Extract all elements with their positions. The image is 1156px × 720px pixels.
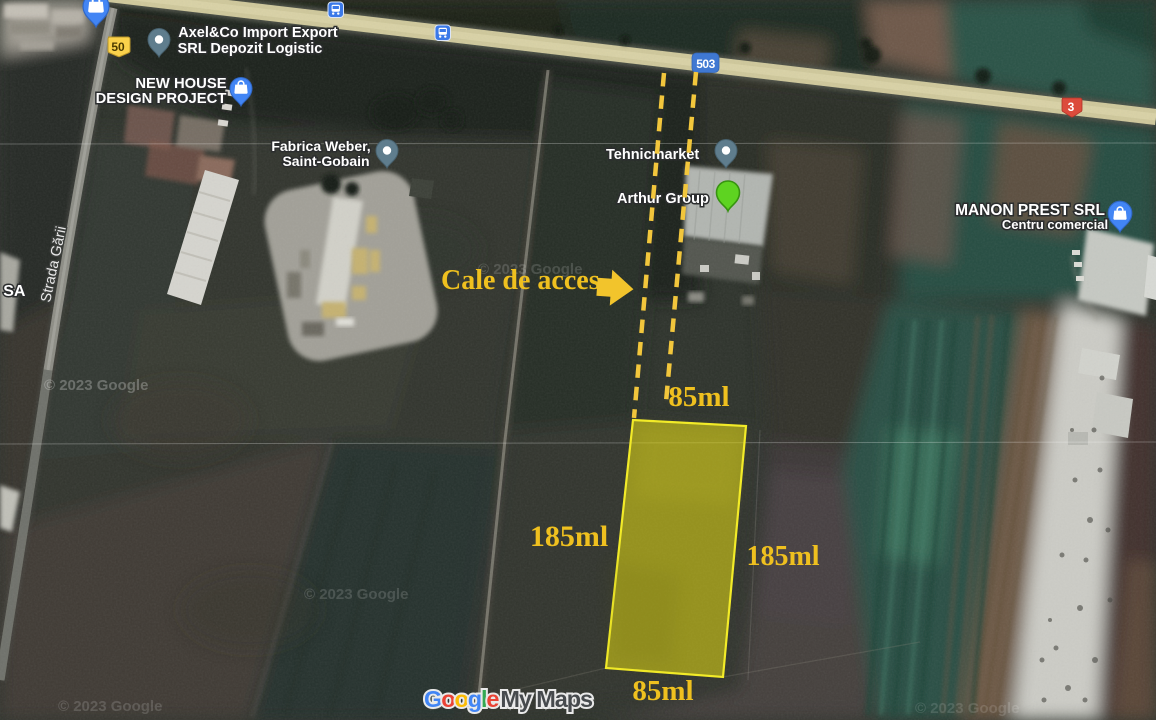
svg-text:Centru comercial: Centru comercial [1002,217,1108,232]
svg-text:Cale de acces: Cale de acces [441,265,600,296]
svg-text:GoogleMy Maps: GoogleMy Maps [424,686,593,712]
svg-text:g SA: g SA [0,283,26,300]
svg-text:Tehnicmarket: Tehnicmarket [606,147,699,163]
svg-text:185ml: 185ml [746,541,819,572]
svg-text:NEW HOUSE: NEW HOUSE [135,76,226,92]
svg-text:50: 50 [111,40,125,54]
svg-text:85ml: 85ml [632,675,693,707]
svg-text:Saint-Gobain: Saint-Gobain [282,153,369,169]
svg-text:© 2023 Google: © 2023 Google [304,586,408,603]
svg-text:85ml: 85ml [668,381,729,413]
svg-text:© 2023 Google: © 2023 Google [58,698,162,715]
svg-text:SRL Depozit Logistic: SRL Depozit Logistic [178,41,323,57]
svg-text:Arthur Group: Arthur Group [617,191,709,207]
svg-text:DESIGN PROJECT: DESIGN PROJECT [96,91,227,107]
svg-text:© 2023 Google: © 2023 Google [44,377,148,394]
svg-text:Axel&Co Import Export: Axel&Co Import Export [178,25,338,41]
svg-text:503: 503 [696,57,715,71]
svg-text:3: 3 [1068,100,1075,114]
svg-text:185ml: 185ml [530,520,608,553]
svg-text:Fabrica Weber,: Fabrica Weber, [271,138,370,154]
svg-text:© 2023 Google: © 2023 Google [915,700,1019,717]
